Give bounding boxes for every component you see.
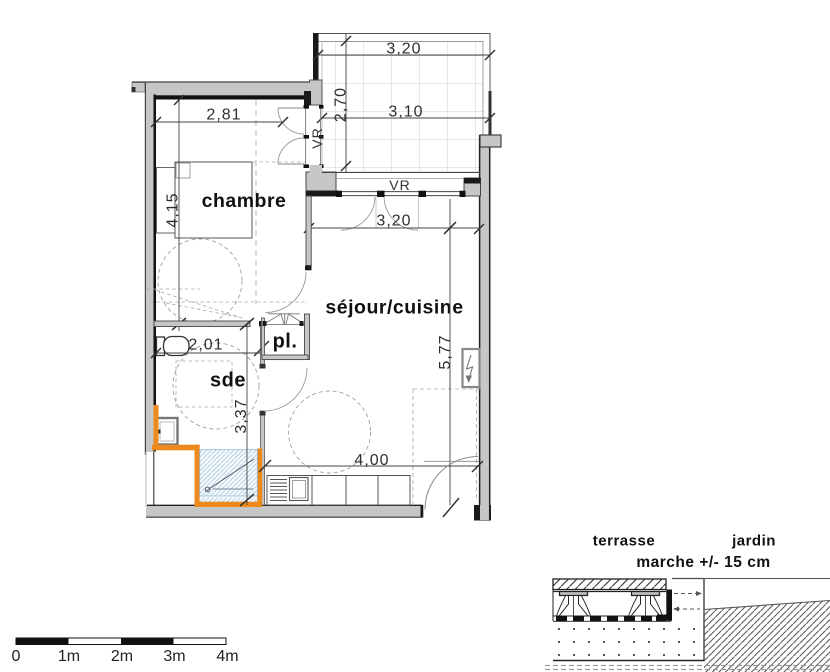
svg-text:VR: VR [389, 177, 410, 193]
svg-text:1m: 1m [58, 648, 80, 665]
svg-text:3,20: 3,20 [386, 41, 421, 58]
svg-text:4,00: 4,00 [354, 452, 389, 469]
svg-text:0: 0 [12, 648, 21, 665]
svg-text:sde: sde [210, 370, 246, 392]
svg-text:4,15: 4,15 [165, 192, 182, 227]
svg-text:2,70: 2,70 [333, 87, 350, 122]
svg-text:2m: 2m [111, 648, 133, 665]
svg-text:3,10: 3,10 [388, 104, 423, 121]
svg-text:2,81: 2,81 [206, 107, 241, 124]
svg-text:2,01: 2,01 [188, 337, 223, 354]
svg-text:3,20: 3,20 [376, 213, 411, 230]
svg-text:chambre: chambre [202, 190, 287, 212]
svg-text:3,37: 3,37 [233, 398, 250, 433]
svg-text:VR: VR [309, 127, 325, 148]
svg-text:jardin: jardin [731, 533, 776, 550]
svg-text:4m: 4m [216, 648, 238, 665]
svg-text:terrasse: terrasse [593, 533, 655, 550]
svg-text:5,77: 5,77 [437, 334, 454, 369]
svg-text:séjour/cuisine: séjour/cuisine [325, 297, 463, 319]
svg-text:marche +/- 15 cm: marche +/- 15 cm [636, 554, 770, 571]
svg-text:pl.: pl. [273, 331, 298, 353]
svg-text:3m: 3m [163, 648, 185, 665]
